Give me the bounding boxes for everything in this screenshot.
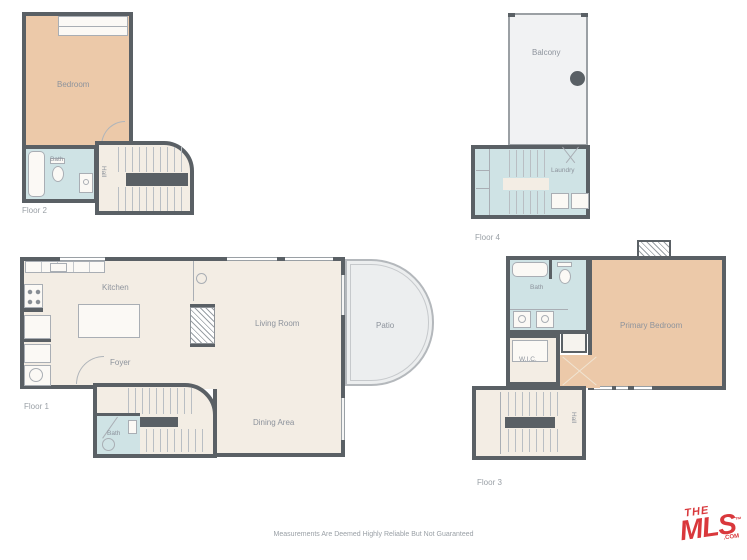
floor2-hall-label: Hall	[100, 166, 107, 177]
balcony-table-fixture	[570, 71, 585, 86]
balcony-corner-mark	[581, 13, 588, 17]
floor3-label: Floor 3	[477, 478, 502, 487]
fireplace	[190, 307, 215, 344]
wall	[24, 308, 43, 312]
floor3-wic-label: W.I.C.	[519, 356, 537, 363]
wall	[97, 413, 140, 416]
floor3-stairs-upper	[502, 392, 560, 416]
floor4-stair-landing	[503, 178, 549, 190]
laundry-shelf-line	[476, 170, 489, 171]
laundry-shelf-line	[476, 188, 489, 189]
toilet-bowl-fixture	[52, 166, 64, 182]
floor1-label: Floor 1	[24, 402, 49, 411]
floor1-foyer-label: Foyer	[110, 358, 130, 367]
disclaimer-text: Measurements Are Deemed Highly Reliable …	[0, 531, 747, 538]
wall	[217, 453, 345, 457]
floor2-stairs-upper	[112, 147, 186, 172]
mls-logo-tm: ™	[735, 517, 742, 525]
floor1-stairs-lower	[140, 429, 204, 452]
kitchen-island	[78, 304, 140, 338]
floor2-stair-landing	[126, 173, 188, 186]
sink-basin-dot	[518, 315, 526, 323]
sink-fixture	[128, 420, 137, 434]
window	[634, 386, 652, 390]
toilet-bowl-fixture	[559, 269, 571, 284]
floor3-bath-label: Bath	[530, 284, 543, 291]
window	[341, 398, 345, 440]
stair-stringer-line	[500, 392, 501, 454]
floor1-patio-label: Patio	[376, 321, 394, 330]
round-fixture	[196, 273, 207, 284]
floor3-stair-landing	[505, 417, 555, 428]
floor4-label: Floor 4	[475, 233, 500, 242]
floor3-stairs-lower	[502, 429, 560, 452]
floor3-hall-label: Hall	[570, 412, 577, 423]
stove-fixture	[24, 284, 43, 308]
bathtub-fixture	[512, 262, 548, 277]
floor3-primary-bedroom-label: Primary Bedroom	[620, 321, 682, 330]
window	[227, 257, 277, 261]
floor2-bath-label: Bath	[50, 156, 63, 163]
floor1-bath-label: Bath	[107, 430, 120, 437]
wall	[190, 344, 215, 347]
wall	[549, 260, 552, 279]
laundry-closet-line	[489, 149, 490, 215]
linen-closet	[561, 332, 587, 353]
sink-basin-dot	[83, 179, 89, 185]
sink-basin-dot	[541, 315, 549, 323]
closet-divider-line	[58, 26, 128, 27]
floor4-laundry-label: Laundry	[551, 167, 575, 174]
window	[341, 275, 345, 315]
closet-fixture	[24, 344, 51, 363]
floor4-stairs-lower	[503, 191, 549, 214]
toilet-fixture	[102, 438, 115, 451]
mls-logo: THE MLS™ .COM	[677, 501, 747, 559]
floor1-dining-area-label: Dining Area	[253, 418, 294, 427]
floor2-bedroom-label: Bedroom	[57, 80, 89, 89]
washer-fixture	[551, 193, 569, 209]
window	[285, 257, 333, 261]
floor4-stairs-upper	[503, 150, 549, 177]
pantry-divider-line	[193, 261, 194, 301]
closet-fixture	[24, 315, 51, 339]
wall	[24, 339, 51, 342]
floor1-stairs-upper	[122, 388, 198, 414]
floorplan-canvas: Bedroom Bath Hall Floor 2 Balcony Laundr…	[0, 0, 747, 560]
bathtub-fixture	[28, 151, 45, 197]
floor1-stair-landing	[138, 417, 178, 427]
floor1-living-dining-area	[217, 257, 345, 457]
floor4-balcony-label: Balcony	[532, 48, 560, 57]
floor2-label: Floor 2	[22, 206, 47, 215]
toilet-tank-fixture	[557, 262, 572, 267]
floor2-stairs-lower	[112, 187, 186, 211]
vanity-counter-line	[510, 309, 568, 310]
kitchen-sink-fixture	[50, 263, 67, 272]
floor1-living-room-label: Living Room	[255, 319, 299, 328]
dryer-fixture	[571, 193, 589, 209]
balcony-corner-mark	[508, 13, 515, 17]
floor1-kitchen-label: Kitchen	[102, 283, 129, 292]
window	[616, 386, 628, 390]
water-heater-fixture	[29, 368, 43, 382]
